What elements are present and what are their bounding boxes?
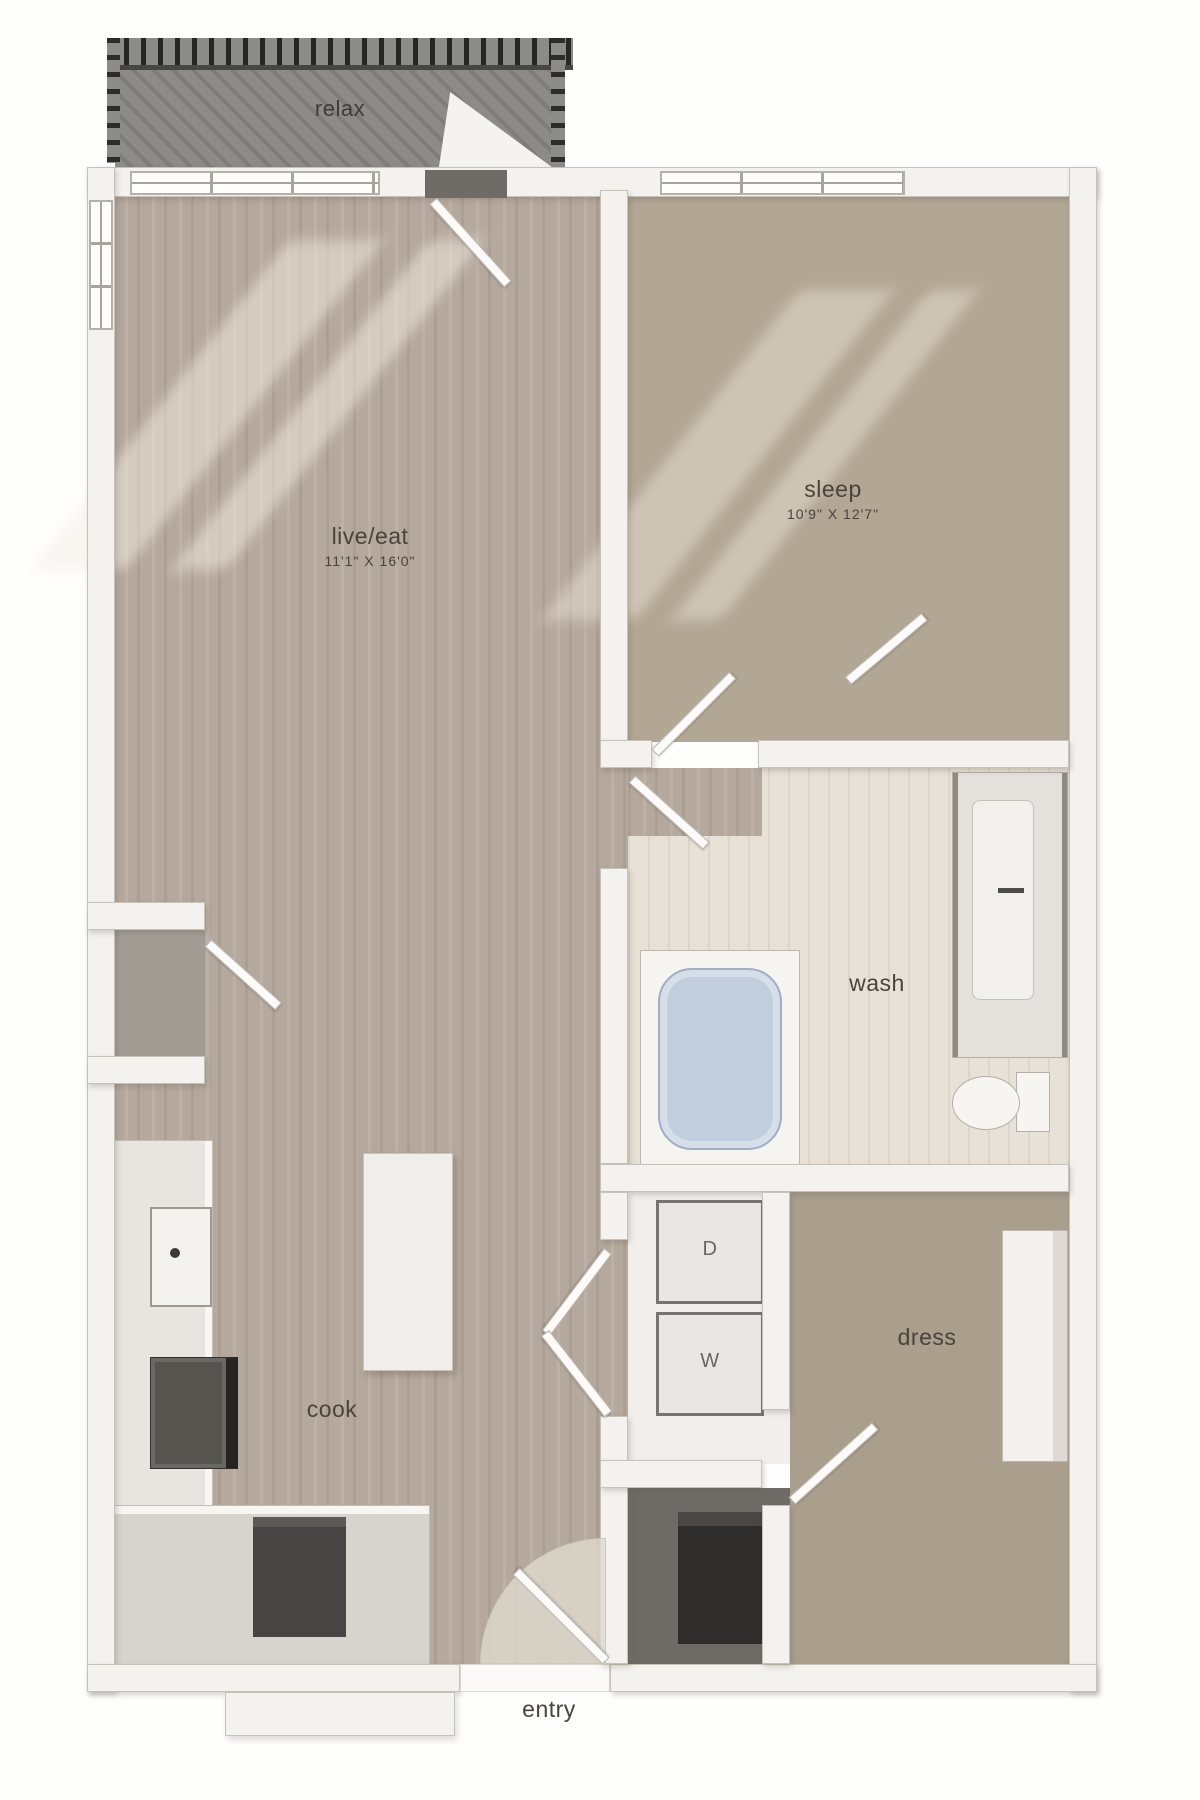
room-label-wash: wash bbox=[802, 970, 952, 997]
wall-right bbox=[1069, 167, 1097, 1692]
window-live bbox=[130, 171, 380, 195]
wall-laundry-dress bbox=[762, 1192, 790, 1410]
wall-pantry-bottom bbox=[87, 1056, 205, 1084]
entry-label: entry bbox=[469, 1696, 629, 1723]
kitchen-sink bbox=[150, 1207, 212, 1307]
wash-label: wash bbox=[802, 970, 952, 997]
window-sleep bbox=[660, 171, 905, 195]
wall-dress-west-lower bbox=[762, 1505, 790, 1664]
wall-sleep-bottom-b bbox=[758, 740, 1069, 768]
room-dim-live-eat: 11'1" X 16'0" bbox=[230, 553, 510, 569]
closet-shelf bbox=[1002, 1230, 1068, 1462]
room-label-live-eat: live/eat bbox=[230, 523, 510, 550]
room-label-sleep: sleep bbox=[693, 476, 973, 503]
pantry-floor bbox=[113, 930, 205, 1056]
room-dim-sleep: 10'9" X 12'7" bbox=[693, 506, 973, 522]
wall-laundry-west-top bbox=[600, 1192, 628, 1240]
hall-floor bbox=[628, 768, 762, 836]
room-label-cook: cook bbox=[257, 1396, 407, 1423]
room-label-dress: dress bbox=[847, 1324, 1007, 1351]
toilet-tank bbox=[1016, 1072, 1050, 1132]
vanity-sink bbox=[972, 800, 1034, 1000]
wall-wash-west bbox=[600, 868, 628, 1164]
wall-sleep-bottom-a bbox=[600, 740, 652, 768]
kitchen-island bbox=[363, 1153, 453, 1371]
washer-label: W bbox=[656, 1350, 764, 1373]
live-eat-label: live/eat 11'1" X 16'0" bbox=[230, 523, 510, 569]
room-label-relax: relax bbox=[315, 96, 365, 121]
floor-plan: relax D W bbox=[0, 0, 1200, 1800]
wall-wash-bottom bbox=[600, 1164, 1069, 1192]
balcony-railing-top bbox=[107, 38, 573, 70]
wall-bottom-left bbox=[87, 1664, 460, 1692]
vanity-faucet bbox=[998, 888, 1024, 893]
wall-pantry-top bbox=[87, 902, 205, 930]
entry-step bbox=[225, 1692, 455, 1736]
dryer-label: D bbox=[656, 1238, 764, 1261]
kitchen-faucet bbox=[170, 1248, 180, 1258]
balcony-slider bbox=[425, 170, 507, 198]
balcony-label: relax bbox=[115, 96, 565, 122]
washer-letter: W bbox=[700, 1350, 719, 1372]
sleep-label: sleep 10'9" X 12'7" bbox=[693, 476, 973, 522]
dryer-letter: D bbox=[703, 1238, 718, 1260]
window-left bbox=[89, 200, 113, 330]
bathtub bbox=[658, 968, 782, 1150]
wall-bottom-right bbox=[610, 1664, 1097, 1692]
cook-label: cook bbox=[257, 1396, 407, 1423]
room-label-entry: entry bbox=[469, 1696, 629, 1723]
stove bbox=[150, 1357, 238, 1469]
lower-appliance bbox=[253, 1517, 346, 1637]
entry-threshold bbox=[460, 1664, 610, 1692]
toilet-bowl bbox=[952, 1076, 1020, 1130]
wall-laundry-bottom bbox=[600, 1460, 762, 1488]
wall-live-sleep bbox=[600, 190, 628, 742]
dress-label: dress bbox=[847, 1324, 1007, 1351]
